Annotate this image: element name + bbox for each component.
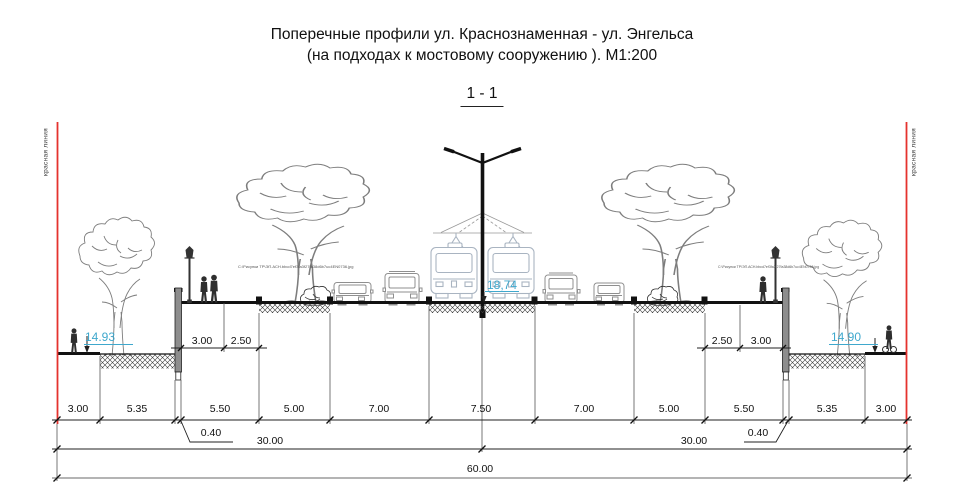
dim-label-sub: 3.00 bbox=[192, 335, 212, 347]
pedestrian-outer-left bbox=[71, 328, 78, 352]
drawing-sheet: Поперечные профили ул. Краснознаменная -… bbox=[0, 0, 957, 503]
dim-label-wall-right: 0.40 bbox=[748, 427, 768, 439]
dim-label-sub: 3.00 bbox=[751, 335, 771, 347]
cyclist-outer-right bbox=[883, 325, 897, 352]
dim-label-sub: 2.50 bbox=[712, 335, 732, 347]
file-path-annotation-right: С:\Рисунки ТР\ЭП.АСН.bbcd7ef3fa3f27fa38d… bbox=[718, 265, 819, 269]
red-line-label-right: красная линия bbox=[911, 128, 918, 176]
dim-label: 5.00 bbox=[284, 403, 304, 415]
dim-label: 5.00 bbox=[659, 403, 679, 415]
park-lamp-left bbox=[185, 246, 195, 303]
dim-label: 3.00 bbox=[68, 403, 88, 415]
retaining-wall-right bbox=[781, 288, 790, 380]
dim-label: 5.50 bbox=[210, 403, 230, 415]
retaining-wall-left bbox=[174, 288, 183, 380]
dim-label: 7.00 bbox=[574, 403, 594, 415]
dim-label: 7.00 bbox=[369, 403, 389, 415]
file-path-annotation-left: С:\Рисунки ТР\ЭП.АСН.bbcd7ef3fa3f27fa38d… bbox=[238, 264, 354, 269]
elevation-right: 14.90 bbox=[831, 330, 861, 344]
dim-label: 5.35 bbox=[127, 403, 147, 415]
tree-inner-right bbox=[602, 164, 735, 303]
dim-label: 5.35 bbox=[817, 403, 837, 415]
pedestrians-left bbox=[200, 275, 217, 303]
page-title-line1: Поперечные профили ул. Краснознаменная -… bbox=[271, 26, 694, 44]
elevation-center: 18,74 bbox=[487, 278, 517, 292]
dim-label-total: 60.00 bbox=[467, 463, 493, 475]
tram-left bbox=[431, 233, 477, 298]
pedestrian-right bbox=[759, 276, 766, 302]
park-lamp-right bbox=[771, 246, 781, 303]
car-suv-left bbox=[383, 272, 422, 306]
red-line-label-left: красная линия bbox=[43, 128, 50, 176]
page-title-line2: (на подходах к мостовому сооружению ). М… bbox=[307, 47, 657, 65]
dim-label: 7.50 bbox=[471, 403, 491, 415]
dim-label-half-right: 30.00 bbox=[681, 435, 707, 447]
car-suv-right bbox=[543, 273, 580, 305]
dim-label-half-left: 30.00 bbox=[257, 435, 283, 447]
elevation-left: 14.93 bbox=[85, 330, 115, 344]
dim-label: 3.00 bbox=[876, 403, 896, 415]
cross-section-drawing bbox=[0, 0, 957, 503]
dim-label-sub: 2.50 bbox=[231, 335, 251, 347]
section-label: 1 - 1 bbox=[460, 85, 503, 107]
dim-label-wall-left: 0.40 bbox=[201, 427, 221, 439]
dim-label: 5.50 bbox=[734, 403, 754, 415]
